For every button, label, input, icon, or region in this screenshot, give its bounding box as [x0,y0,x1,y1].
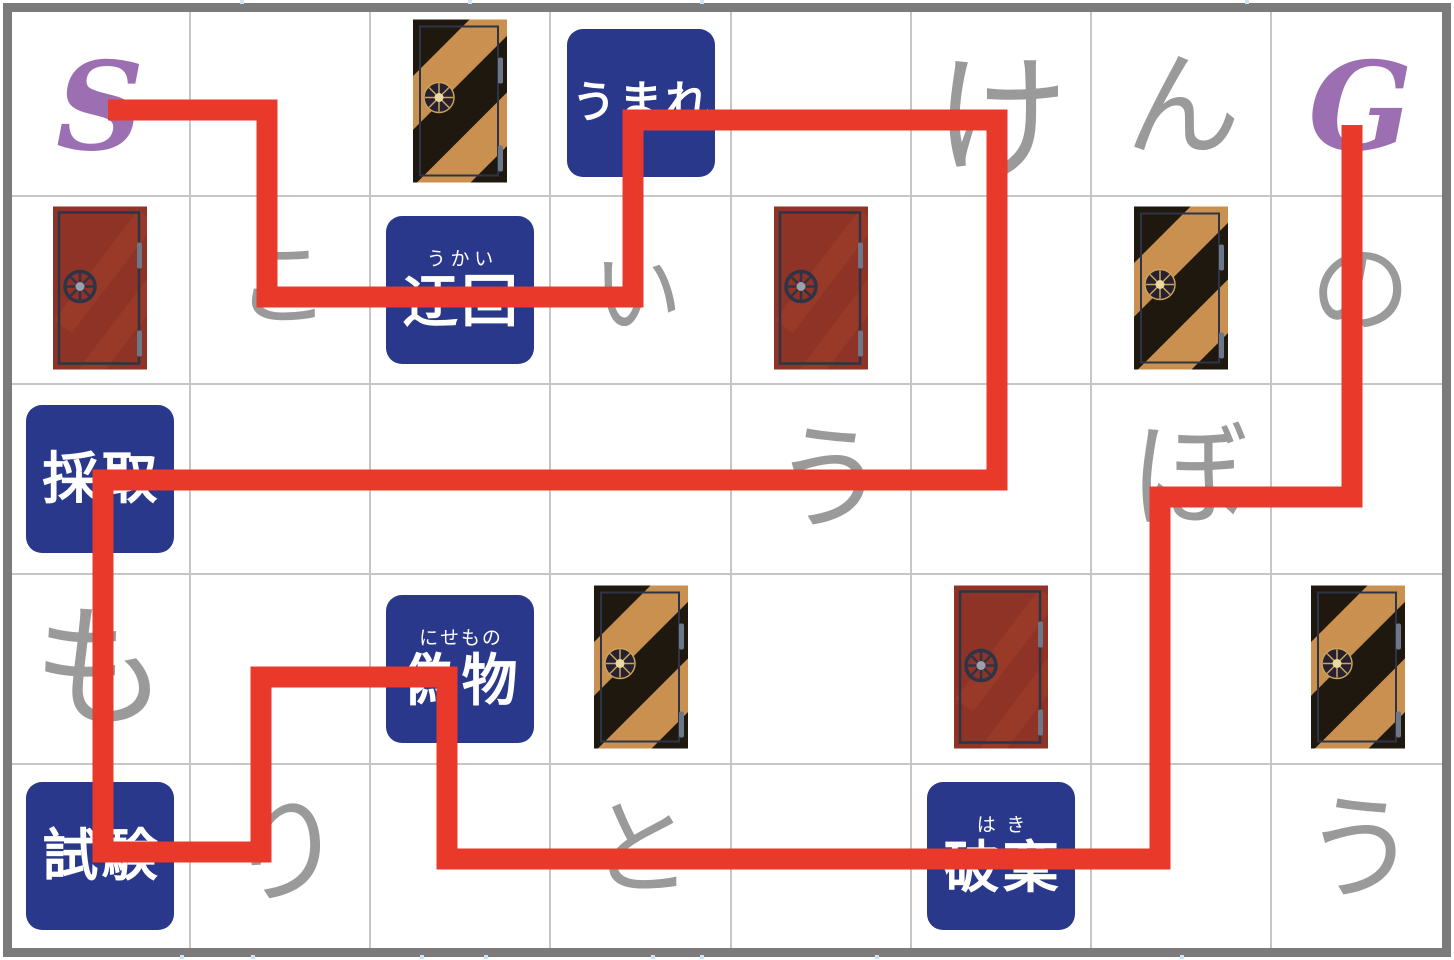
word-label: 採取 [42,450,161,509]
edge-tick [1180,955,1184,959]
hint-letter-ri: り [225,792,345,912]
striped-door [594,586,688,753]
grid-line-vertical [1270,10,1272,948]
edge-tick [700,0,704,4]
word-label: 試験 [42,827,161,886]
edge-tick [651,955,655,959]
edge-tick [240,0,244,4]
grid-line-vertical [549,10,551,948]
edge-tick [180,955,184,959]
goal-marker: G [1308,46,1412,168]
striped-door [1311,586,1405,753]
word-square-shiken: 試験 [26,782,174,930]
grid-line-vertical [730,10,732,948]
grid-line-horizontal [10,195,1444,197]
word-label: 偽物 [402,652,521,711]
grid-line-vertical [369,10,371,948]
word-square-nisemono: にせもの偽物 [386,595,534,743]
word-square-haki: はき破棄 [927,782,1075,930]
word-label: うまれ [572,80,712,126]
hint-letter-ke: け [934,52,1069,187]
edge-tick [1245,0,1249,4]
hint-letter-ko: こ [235,239,330,334]
hint-letter-i: い [593,250,683,340]
grid-line-horizontal [10,383,1444,385]
edge-tick [484,955,488,959]
hint-letter-to: と [588,798,693,903]
word-square-umare: うまれ [567,29,715,177]
red-door [774,207,868,374]
striped-door [1134,207,1228,374]
hint-letter-bo: ぼ [1132,420,1247,535]
striped-door [413,20,507,187]
hint-letter-u: う [1303,793,1418,908]
grid-line-horizontal [10,763,1444,765]
edge-tick [251,955,255,959]
edge-tick [875,955,879,959]
hint-letter-n: ん [1125,50,1240,165]
word-square-saishu: 採取 [26,405,174,553]
grid-line-vertical [910,10,912,948]
edge-tick [700,955,704,959]
grid-line-horizontal [10,573,1444,575]
grid-line-vertical [1090,10,1092,948]
hint-letter-mo: も [33,602,168,737]
edge-tick [468,0,472,4]
furigana: はき [977,815,1036,836]
start-marker: S [56,46,144,168]
word-square-ukai: うかい迂回 [386,216,534,364]
furigana: にせもの [419,628,503,649]
word-label: 破棄 [943,839,1062,898]
edge-tick [420,955,424,959]
hint-letter-u: う [772,423,887,538]
grid-line-vertical [189,10,191,948]
word-label: 迂回 [402,273,521,332]
puzzle-board[interactable]: けんこいのうぼもりとう S G [0,0,1454,960]
red-door [954,586,1048,753]
red-door [53,207,147,374]
furigana: うかい [427,249,498,270]
hint-letter-no: の [1311,240,1411,340]
